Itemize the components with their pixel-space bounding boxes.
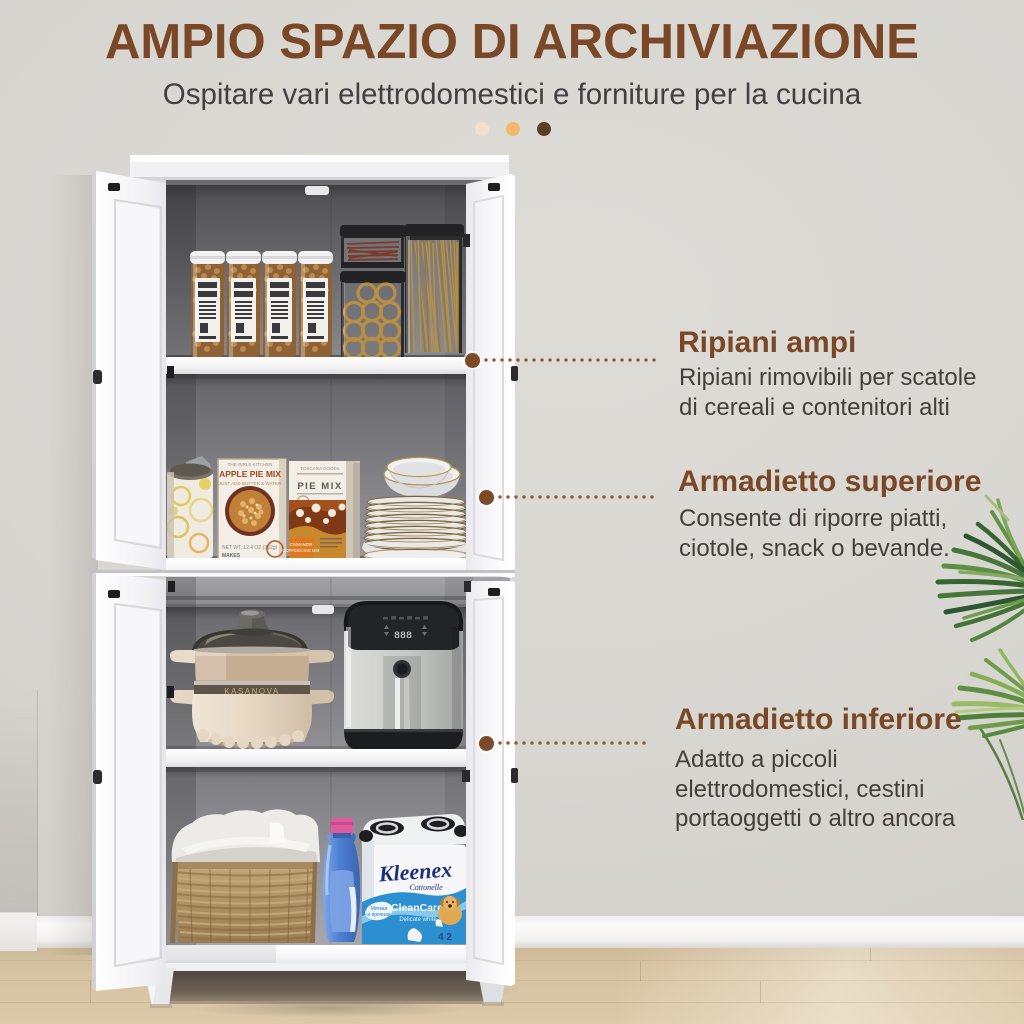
svg-text:4 2: 4 2 — [438, 932, 452, 943]
svg-text:COFFEECAKE MIX: COFFEECAKE MIX — [283, 548, 320, 553]
svg-text:CleanCare: CleanCare — [391, 902, 443, 914]
svg-text:Cottonelle: Cottonelle — [409, 883, 443, 892]
svg-text:и прочная: и прочная — [367, 912, 390, 918]
svg-text:JUST ADD BUTTER & WATER: JUST ADD BUTTER & WATER — [219, 481, 282, 486]
svg-text:PIE MIX: PIE MIX — [297, 481, 342, 492]
svg-text:Delicate white: Delicate white — [399, 917, 437, 923]
svg-text:NET WT. 12.4 OZ (352g): NET WT. 12.4 OZ (352g) — [222, 545, 278, 551]
svg-text:TOSCANA GOODS: TOSCANA GOODS — [300, 466, 339, 471]
svg-text:THE GIRLS KITCHEN: THE GIRLS KITCHEN — [228, 462, 273, 467]
svg-text:CINNAMON: CINNAMON — [290, 542, 313, 547]
svg-text:APPLE PIE MIX: APPLE PIE MIX — [219, 469, 281, 479]
svg-text:888: 888 — [394, 631, 412, 642]
